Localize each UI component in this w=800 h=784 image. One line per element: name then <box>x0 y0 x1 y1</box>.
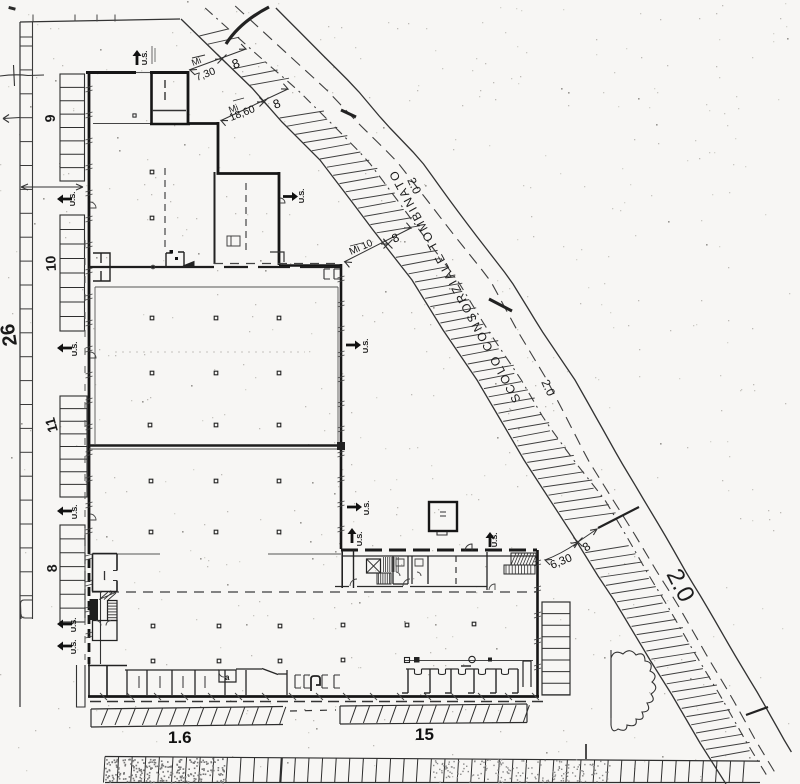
svg-text:9: 9 <box>42 114 58 123</box>
svg-text:U.S.: U.S. <box>297 189 306 204</box>
svg-text:U.S.: U.S. <box>140 51 149 66</box>
svg-text:U.S.: U.S. <box>68 192 77 207</box>
svg-text:26: 26 <box>0 322 22 347</box>
svg-text:1.6: 1.6 <box>168 728 192 747</box>
svg-text:U.S.: U.S. <box>355 532 364 547</box>
svg-text:U.S.: U.S. <box>70 342 79 357</box>
svg-text:U.S.: U.S. <box>490 533 499 548</box>
svg-text:U.S.: U.S. <box>69 618 78 633</box>
svg-text:U.S.: U.S. <box>70 505 79 520</box>
svg-text:U.S.: U.S. <box>361 339 370 354</box>
svg-text:a: a <box>225 673 230 682</box>
svg-text:U.S.: U.S. <box>69 640 78 655</box>
svg-text:10: 10 <box>42 255 59 272</box>
svg-text:U.S.: U.S. <box>362 501 371 516</box>
svg-text:8: 8 <box>44 564 60 573</box>
svg-text:15: 15 <box>415 725 434 744</box>
